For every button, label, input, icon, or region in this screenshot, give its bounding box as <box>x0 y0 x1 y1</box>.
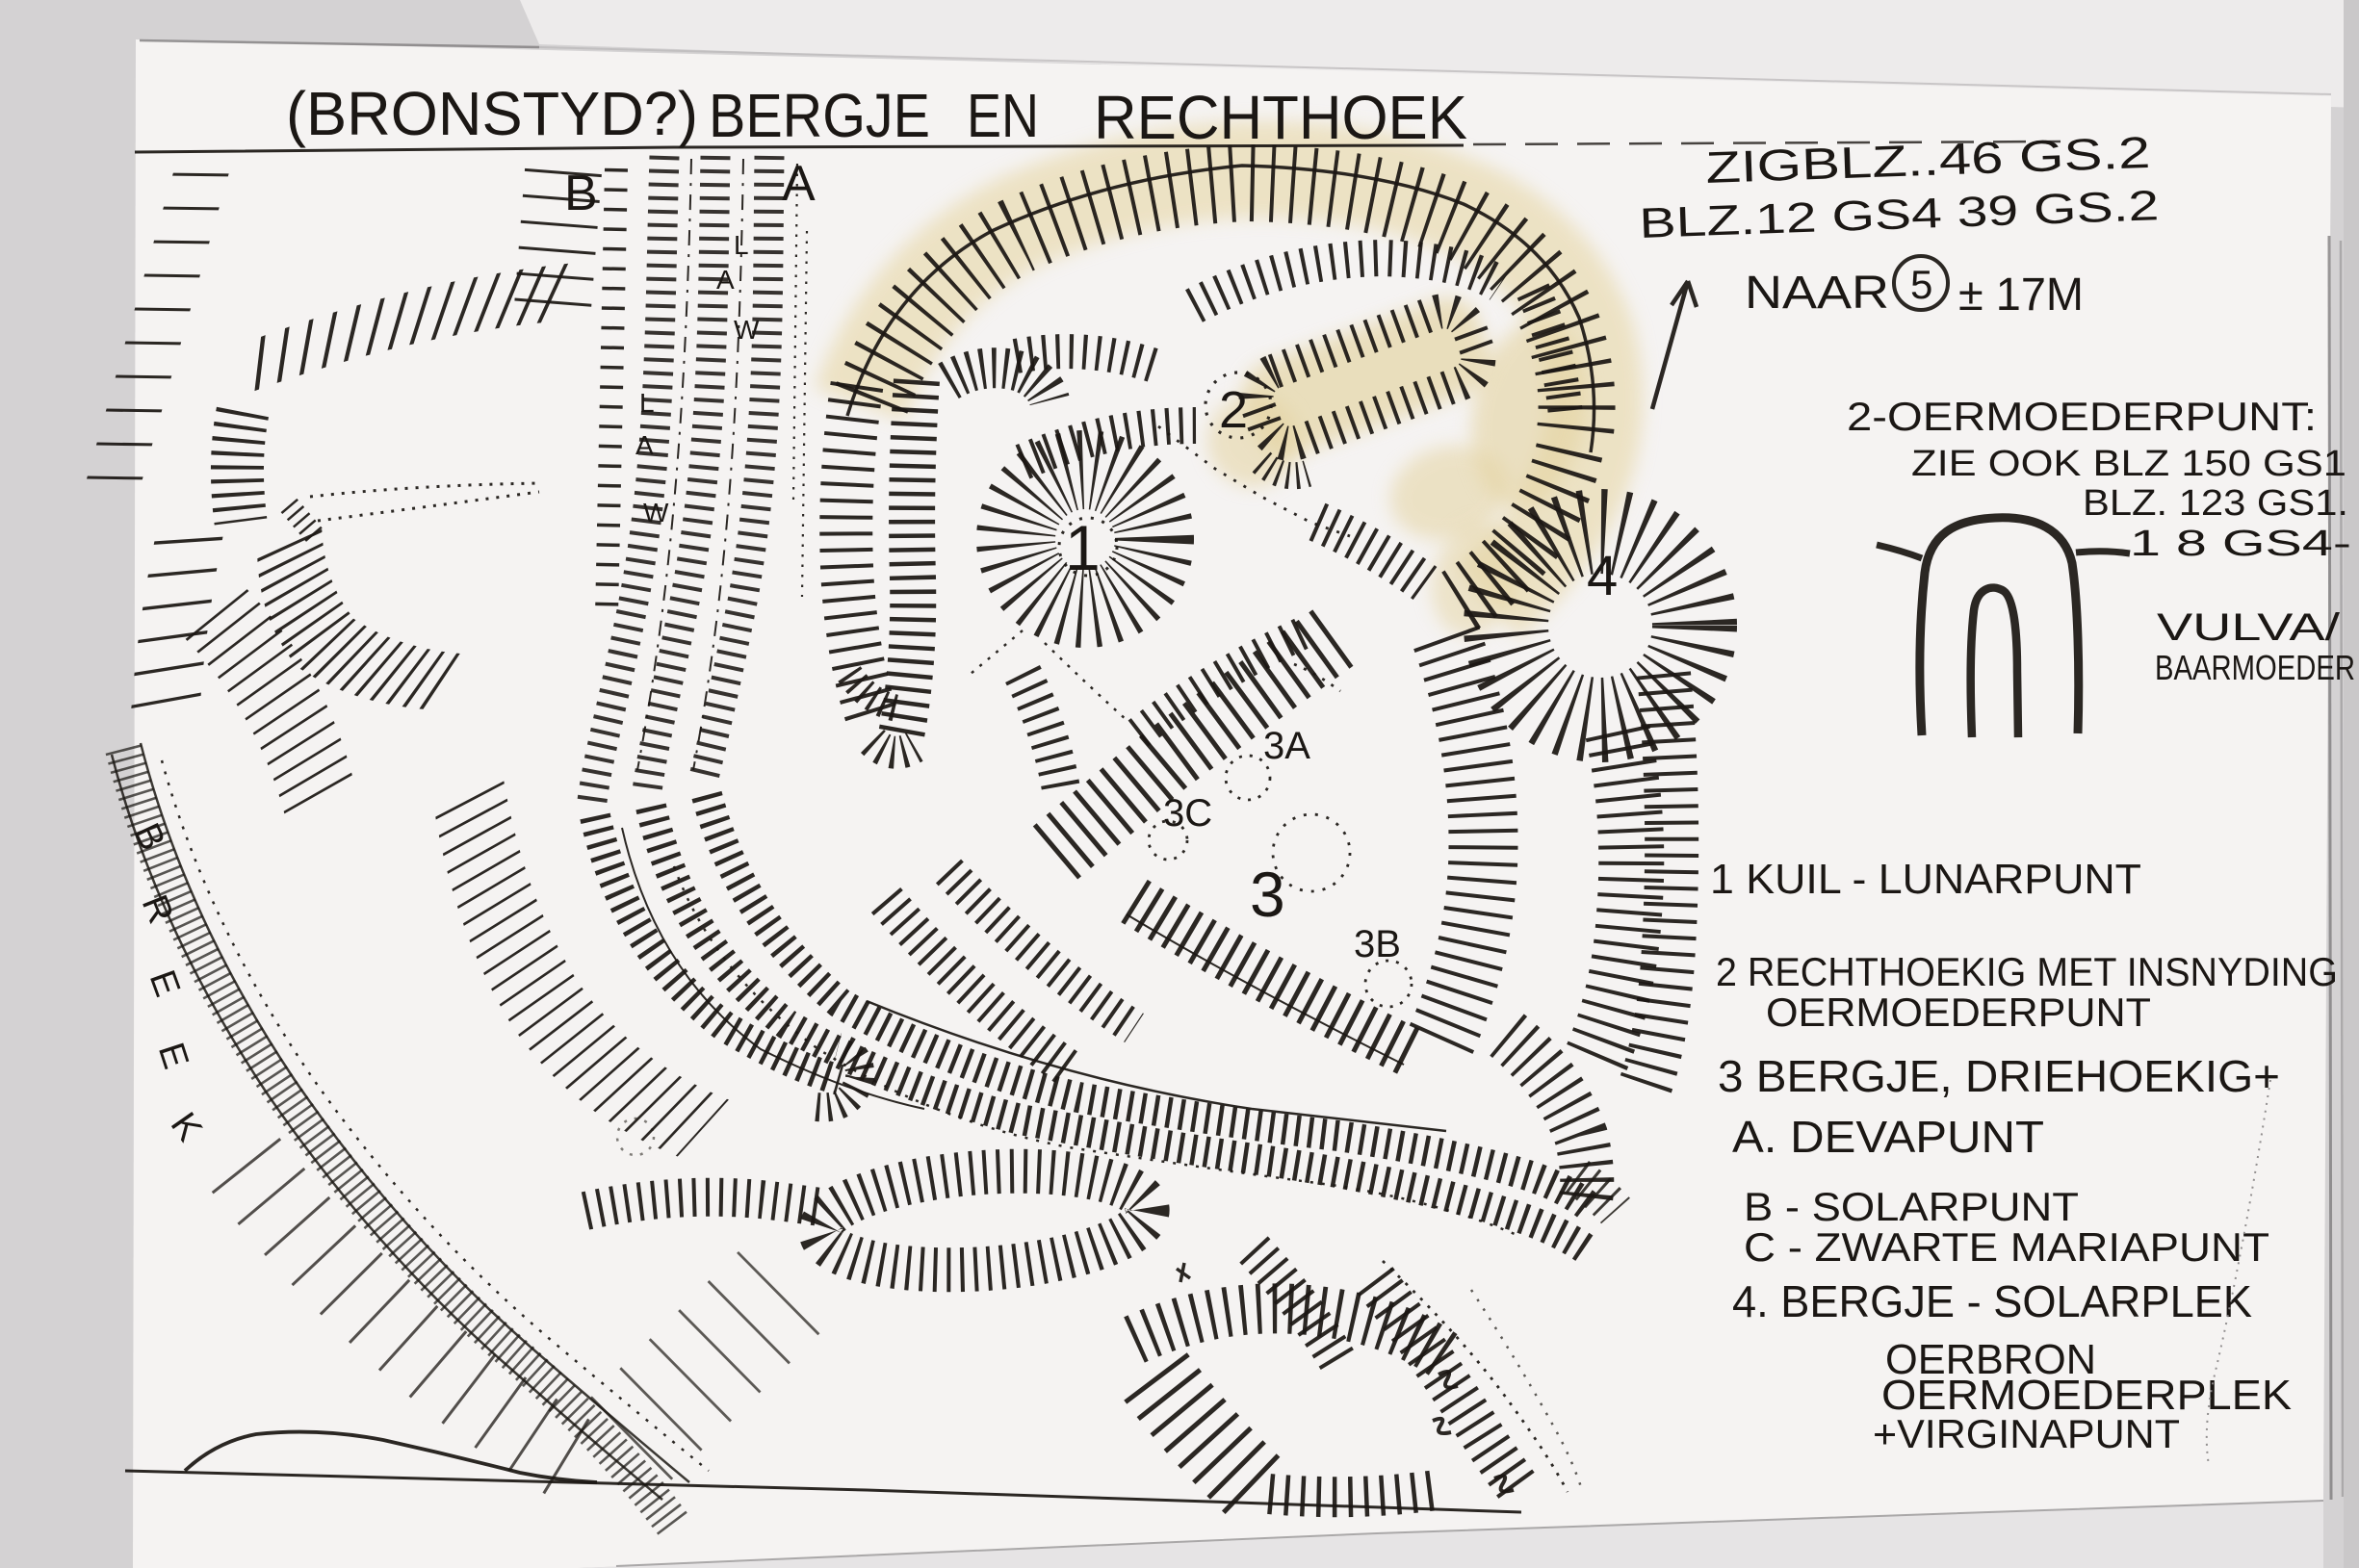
svg-text:4. BERGJE - SOLARPLEK: 4. BERGJE - SOLARPLEK <box>1732 1276 2252 1326</box>
svg-text:B - SOLARPUNT: B - SOLARPUNT <box>1744 1184 2079 1229</box>
svg-text:1 KUIL - LUNARPUNT: 1 KUIL - LUNARPUNT <box>1710 856 2141 903</box>
svg-text:BLZ. 123 GS1.: BLZ. 123 GS1. <box>2083 483 2348 524</box>
svg-text:RECHTHOEK: RECHTHOEK <box>1094 83 1467 152</box>
svg-text:OERMOEDERPUNT: OERMOEDERPUNT <box>1766 990 2151 1035</box>
svg-text:1 8 GS4-: 1 8 GS4- <box>2130 524 2351 564</box>
svg-text:L: L <box>734 230 749 260</box>
svg-text:± 17M: ± 17M <box>1958 270 2084 321</box>
svg-text:(BRONSTYD?): (BRONSTYD?) <box>286 79 698 148</box>
svg-text:3 BERGJE, DRIEHOEKIG+: 3 BERGJE, DRIEHOEKIG+ <box>1718 1051 2280 1101</box>
svg-text:1: 1 <box>1065 512 1101 583</box>
svg-text:BERGJE: BERGJE <box>709 81 930 150</box>
svg-text:3A: 3A <box>1263 725 1310 767</box>
svg-text:A: A <box>635 430 654 460</box>
svg-text:A: A <box>782 156 816 212</box>
svg-text:3C: 3C <box>1163 792 1212 835</box>
svg-text:BAARMOEDER: BAARMOEDER <box>2155 648 2355 687</box>
svg-text:3B: 3B <box>1354 923 1401 965</box>
svg-text:B: B <box>564 166 598 221</box>
svg-text:NAAR: NAAR <box>1745 268 1889 319</box>
svg-text:EN: EN <box>967 81 1039 150</box>
svg-text:W: W <box>643 498 669 527</box>
svg-text:L: L <box>639 388 655 418</box>
svg-text:VULVA/: VULVA/ <box>2157 606 2341 649</box>
svg-text:+VIRGINAPUNT: +VIRGINAPUNT <box>1873 1411 2180 1456</box>
svg-text:A. DEVAPUNT: A. DEVAPUNT <box>1732 1112 2044 1162</box>
svg-text:C - ZWARTE MARIAPUNT: C - ZWARTE MARIAPUNT <box>1744 1224 2269 1270</box>
svg-text:A: A <box>716 265 735 295</box>
svg-text:2-OERMOEDERPUNT:: 2-OERMOEDERPUNT: <box>1847 394 2317 439</box>
svg-text:5: 5 <box>1910 262 1932 307</box>
svg-text:3: 3 <box>1250 859 1285 930</box>
svg-text:W: W <box>734 315 760 345</box>
svg-text:2 RECHTHOEKIG MET INSNYDING: 2 RECHTHOEKIG MET INSNYDING <box>1716 949 2338 994</box>
svg-text:2: 2 <box>1219 381 1248 439</box>
svg-text:ZIE OOK BLZ 150 GS1: ZIE OOK BLZ 150 GS1 <box>1911 444 2346 484</box>
svg-text:4: 4 <box>1587 545 1618 607</box>
